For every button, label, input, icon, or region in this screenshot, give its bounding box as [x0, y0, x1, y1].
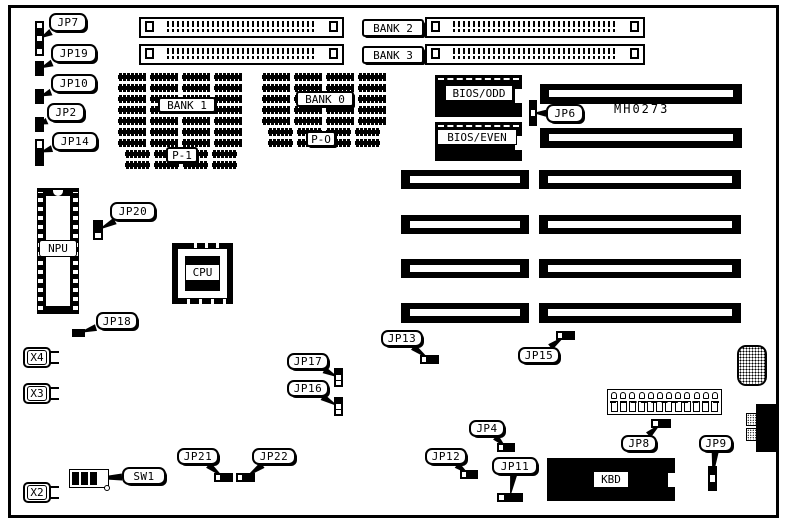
callout-jp14: JP14 — [52, 132, 98, 151]
simm-socket-bank3-left — [139, 44, 344, 65]
ram-chip — [214, 117, 242, 125]
bios-chip-even: BIOS/EVEN — [435, 122, 522, 161]
ram-chip — [125, 161, 150, 169]
ram-chip — [118, 84, 146, 92]
simm-clip — [145, 21, 154, 32]
power-pin-round — [712, 392, 718, 399]
callout-jp12: JP12 — [425, 448, 467, 465]
jumper-block-jp9 — [708, 466, 717, 491]
isa-slot-6-left — [401, 303, 529, 323]
simm-socket-bank2-left — [139, 17, 344, 38]
jumper-pin — [472, 472, 476, 477]
ram-chip — [182, 84, 210, 92]
ram-chip — [214, 73, 242, 81]
jumper-pin — [37, 91, 42, 96]
simm-clip — [431, 21, 440, 32]
crystal-pin — [49, 486, 59, 488]
ram-chip — [182, 128, 210, 136]
power-pin-round — [639, 392, 645, 399]
power-pin-round — [648, 392, 654, 399]
jumper-pin — [37, 63, 42, 68]
jumper-block-jp2 — [35, 117, 44, 132]
jumper-block-jp22 — [236, 473, 255, 482]
jumper-pin — [37, 36, 42, 41]
callout-jp13: JP13 — [381, 330, 423, 347]
ram-chip — [262, 84, 290, 92]
jumper-pin — [95, 233, 101, 238]
label-bank1: BANK 1 — [158, 97, 216, 113]
jumper-block-jp21 — [214, 473, 233, 482]
jumper-block-jp6 — [529, 100, 537, 126]
power-pin-row-top — [611, 392, 718, 399]
isa-slot-6-right — [539, 303, 741, 323]
jumper-pin — [336, 410, 341, 414]
jumper-pin — [516, 495, 521, 500]
bios-chip-label: BIOS/EVEN — [437, 129, 517, 145]
bios-chip-label: BIOS/ODD — [445, 85, 513, 101]
crystal-label: X3 — [27, 386, 46, 401]
power-pin-round — [657, 392, 663, 399]
ram-chip — [326, 73, 354, 81]
power-pin-round — [694, 392, 700, 399]
callout-jp16: JP16 — [287, 380, 329, 397]
ram-chip — [262, 95, 290, 103]
callout-jp21: JP21 — [177, 448, 219, 465]
ram-chip — [118, 95, 146, 103]
isa-slot-opening — [548, 221, 732, 228]
ram-chip — [355, 128, 380, 136]
jumper-pin — [243, 475, 247, 480]
bios-dash-line — [438, 78, 519, 80]
jumper-pin — [79, 331, 83, 335]
power-pin-round — [703, 392, 709, 399]
ram-chip — [214, 139, 242, 147]
power-pin-round — [629, 392, 635, 399]
power-connector-divider — [610, 401, 719, 403]
isa-slot-4-right — [539, 215, 741, 234]
jumper-pin — [427, 357, 431, 362]
din-pin — [746, 428, 757, 441]
dip-switch-cell — [99, 472, 106, 485]
isa-slot-opening — [548, 176, 732, 183]
callout-jp11: JP11 — [492, 457, 538, 475]
jumper-pin — [422, 357, 426, 362]
jumper-block-jp17 — [334, 368, 343, 387]
ram-chip — [214, 128, 242, 136]
jumper-pin — [531, 102, 535, 109]
jumper-pin — [37, 23, 42, 28]
dip-switch-sw1 — [69, 469, 109, 488]
power-pin-round — [666, 392, 672, 399]
label-bank0: BANK 0 — [296, 91, 354, 107]
jumper-block-jp11 — [497, 493, 523, 502]
ram-chip — [214, 84, 242, 92]
jumper-block-jp4 — [497, 443, 515, 452]
ram-chip — [326, 106, 354, 114]
jumper-pin — [710, 475, 715, 481]
ram-chip — [262, 106, 290, 114]
bios-chip-odd: BIOS/ODD — [435, 75, 522, 117]
jumper-block-jp16 — [334, 397, 343, 416]
jumper-pin — [569, 333, 573, 338]
isa-slot-opening — [548, 265, 732, 272]
cpu-label: CPU — [185, 264, 220, 281]
dip-switch-cell — [72, 472, 79, 485]
jumper-pin — [37, 141, 42, 148]
jumper-block-jp12 — [460, 470, 478, 479]
isa-slot-opening — [410, 221, 520, 228]
isa-slot-4-left — [401, 215, 529, 234]
jumper-pin — [95, 228, 101, 233]
jumper-pin — [37, 97, 42, 102]
bios-dash-line — [438, 125, 519, 127]
simm-contacts — [453, 21, 617, 32]
simm-contacts — [453, 48, 617, 59]
isa-slot-opening — [548, 309, 732, 316]
jumper-pin — [505, 495, 510, 500]
ram-chip — [358, 117, 386, 125]
isa-slot-3-left — [401, 170, 529, 189]
simm-clip — [431, 48, 440, 59]
simm-clip — [329, 48, 338, 59]
jumper-pin — [37, 157, 42, 164]
jumper-pin — [558, 333, 562, 338]
jumper-pin — [467, 472, 471, 477]
crystal-pin — [49, 398, 59, 400]
jumper-block-jp19 — [35, 61, 44, 76]
ram-chip — [294, 117, 322, 125]
callout-jp2: JP2 — [47, 103, 85, 122]
power-connector — [607, 389, 722, 415]
crystal-pin — [49, 387, 59, 389]
ram-chip — [268, 139, 293, 147]
ram-chip — [358, 73, 386, 81]
isa-slot-5-left — [401, 259, 529, 278]
isa-slot-3-right — [539, 170, 741, 189]
dip-switch-cell — [90, 472, 97, 485]
jumper-pin — [563, 333, 567, 338]
simm-clip — [630, 48, 639, 59]
jumper-pin — [499, 495, 504, 500]
jumper-pin — [336, 381, 341, 385]
crystal-pin — [49, 362, 59, 364]
npu-socket: NPU — [37, 188, 79, 314]
crystal-pin — [49, 351, 59, 353]
ram-chip — [182, 73, 210, 81]
isa-slot-5-right — [539, 259, 741, 278]
callout-jp22: JP22 — [252, 448, 296, 465]
jumper-pin — [710, 468, 715, 474]
jumper-pin — [95, 222, 101, 227]
kbd-notch — [668, 473, 675, 487]
ram-chip — [214, 95, 242, 103]
jumper-pin — [710, 483, 715, 489]
isa-slot-opening — [410, 309, 520, 316]
ram-chip — [268, 128, 293, 136]
jumper-pin — [37, 119, 42, 124]
kbd-label: KBD — [593, 471, 629, 488]
crystal-pin — [49, 497, 59, 499]
jumper-pin — [653, 421, 658, 426]
ram-chip — [118, 139, 146, 147]
callout-jp15: JP15 — [518, 347, 560, 364]
jumper-pin — [216, 475, 220, 480]
jumper-pin — [37, 42, 42, 47]
simm-contacts — [167, 21, 316, 32]
keyboard-din-connector — [756, 404, 779, 452]
power-pin-round — [620, 392, 626, 399]
jumper-block-jp18 — [72, 329, 85, 337]
jumper-pin — [336, 399, 341, 403]
isa-slot-opening — [410, 176, 520, 183]
isa-slot-1 — [540, 84, 742, 104]
jumper-pin — [531, 117, 535, 124]
ram-chip — [182, 139, 210, 147]
jumper-pin — [659, 421, 664, 426]
ram-chip — [118, 73, 146, 81]
jumper-pin — [664, 421, 669, 426]
jumper-pin — [238, 475, 242, 480]
callout-jp7: JP7 — [49, 13, 87, 32]
power-pin-round — [675, 392, 681, 399]
ram-chip — [212, 150, 237, 158]
jumper-pin — [37, 49, 42, 54]
callout-jp4: JP4 — [469, 420, 505, 437]
ram-chip — [294, 106, 322, 114]
crystal-label: X4 — [27, 350, 46, 365]
jumper-pin — [74, 331, 78, 335]
label-bank3: BANK 3 — [362, 46, 424, 64]
cpu-socket: CPU — [172, 243, 233, 304]
speaker-component — [737, 345, 767, 386]
jumper-pin — [336, 370, 341, 374]
jumper-block-jp14 — [35, 139, 44, 166]
jumper-pin — [336, 375, 341, 379]
ram-chip — [150, 139, 178, 147]
callout-jp19: JP19 — [51, 44, 97, 63]
jumper-pin — [336, 404, 341, 408]
ram-chip — [358, 84, 386, 92]
callout-jp20: JP20 — [110, 202, 156, 221]
isa-slot-opening — [549, 90, 733, 97]
jumper-block-jp7 — [35, 21, 44, 56]
callout-jp6: JP6 — [546, 104, 584, 123]
jumper-pin — [37, 125, 42, 130]
jumper-block-jp13 — [420, 355, 439, 364]
jumper-pin — [499, 445, 503, 450]
jumper-pin — [511, 495, 516, 500]
jumper-pin — [504, 445, 508, 450]
callout-jp8: JP8 — [621, 435, 657, 452]
power-pin-round — [611, 392, 617, 399]
ram-chip — [150, 84, 178, 92]
ram-chip — [358, 95, 386, 103]
ram-chip — [118, 106, 146, 114]
ram-chip — [150, 73, 178, 81]
jumper-pin — [221, 475, 225, 480]
jumper-pin — [433, 357, 437, 362]
callout-sw1: SW1 — [122, 467, 166, 485]
cpu-ticks-bottom — [178, 299, 227, 304]
ram-chip — [214, 106, 242, 114]
simm-clip — [329, 21, 338, 32]
label-bank2: BANK 2 — [362, 19, 424, 37]
simm-contacts — [167, 48, 316, 59]
ram-chip — [150, 117, 178, 125]
jumper-pin — [462, 472, 466, 477]
crystal-x4: X4 — [23, 347, 51, 368]
callout-jp18: JP18 — [96, 312, 138, 330]
ram-chip — [118, 117, 146, 125]
jumper-pin — [227, 475, 231, 480]
ram-chip — [125, 150, 150, 158]
jumper-pin — [37, 29, 42, 34]
label-p1: P-1 — [166, 147, 198, 163]
jumper-block-jp20 — [93, 220, 103, 240]
motherboard-diagram: NPU CPU KBD MH0273 BIOS/ODDBIOS/EVENBANK… — [0, 0, 791, 527]
crystal-x2: X2 — [23, 482, 51, 503]
ram-chip — [358, 106, 386, 114]
part-number-text: MH0273 — [614, 102, 669, 116]
jumper-pin — [37, 69, 42, 74]
jumper-pin — [249, 475, 253, 480]
simm-socket-bank2-right — [425, 17, 645, 38]
callout-jp9: JP9 — [699, 435, 733, 452]
ram-chip — [262, 117, 290, 125]
ram-chip — [118, 128, 146, 136]
din-pin — [746, 413, 757, 426]
bios-notch — [515, 89, 522, 103]
simm-socket-bank3-right — [425, 44, 645, 65]
crystal-label: X2 — [27, 485, 46, 500]
isa-slot-2 — [540, 128, 742, 148]
ram-chip — [294, 73, 322, 81]
jumper-block-jp8 — [651, 419, 671, 428]
dip-switch-cell — [81, 472, 88, 485]
isa-slot-opening — [410, 265, 520, 272]
power-pin-round — [684, 392, 690, 399]
callout-jp17: JP17 — [287, 353, 329, 370]
ram-chip — [355, 139, 380, 147]
jumper-block-jp15 — [556, 331, 575, 340]
ram-chip — [212, 161, 237, 169]
ram-chip — [262, 73, 290, 81]
isa-slot-opening — [549, 134, 733, 141]
jumper-pin — [509, 445, 513, 450]
jumper-pin — [37, 149, 42, 156]
npu-label: NPU — [39, 240, 77, 257]
crystal-x3: X3 — [23, 383, 51, 404]
simm-clip — [630, 21, 639, 32]
ram-chip — [182, 117, 210, 125]
callout-jp10: JP10 — [51, 74, 97, 93]
jumper-block-jp10 — [35, 89, 44, 104]
jumper-pin — [531, 110, 535, 117]
simm-clip — [145, 48, 154, 59]
cpu-ticks-top — [186, 243, 219, 248]
keyboard-controller-chip: KBD — [547, 458, 675, 501]
label-p0: P-O — [306, 131, 336, 147]
ram-chip — [326, 117, 354, 125]
ram-chip — [150, 128, 178, 136]
